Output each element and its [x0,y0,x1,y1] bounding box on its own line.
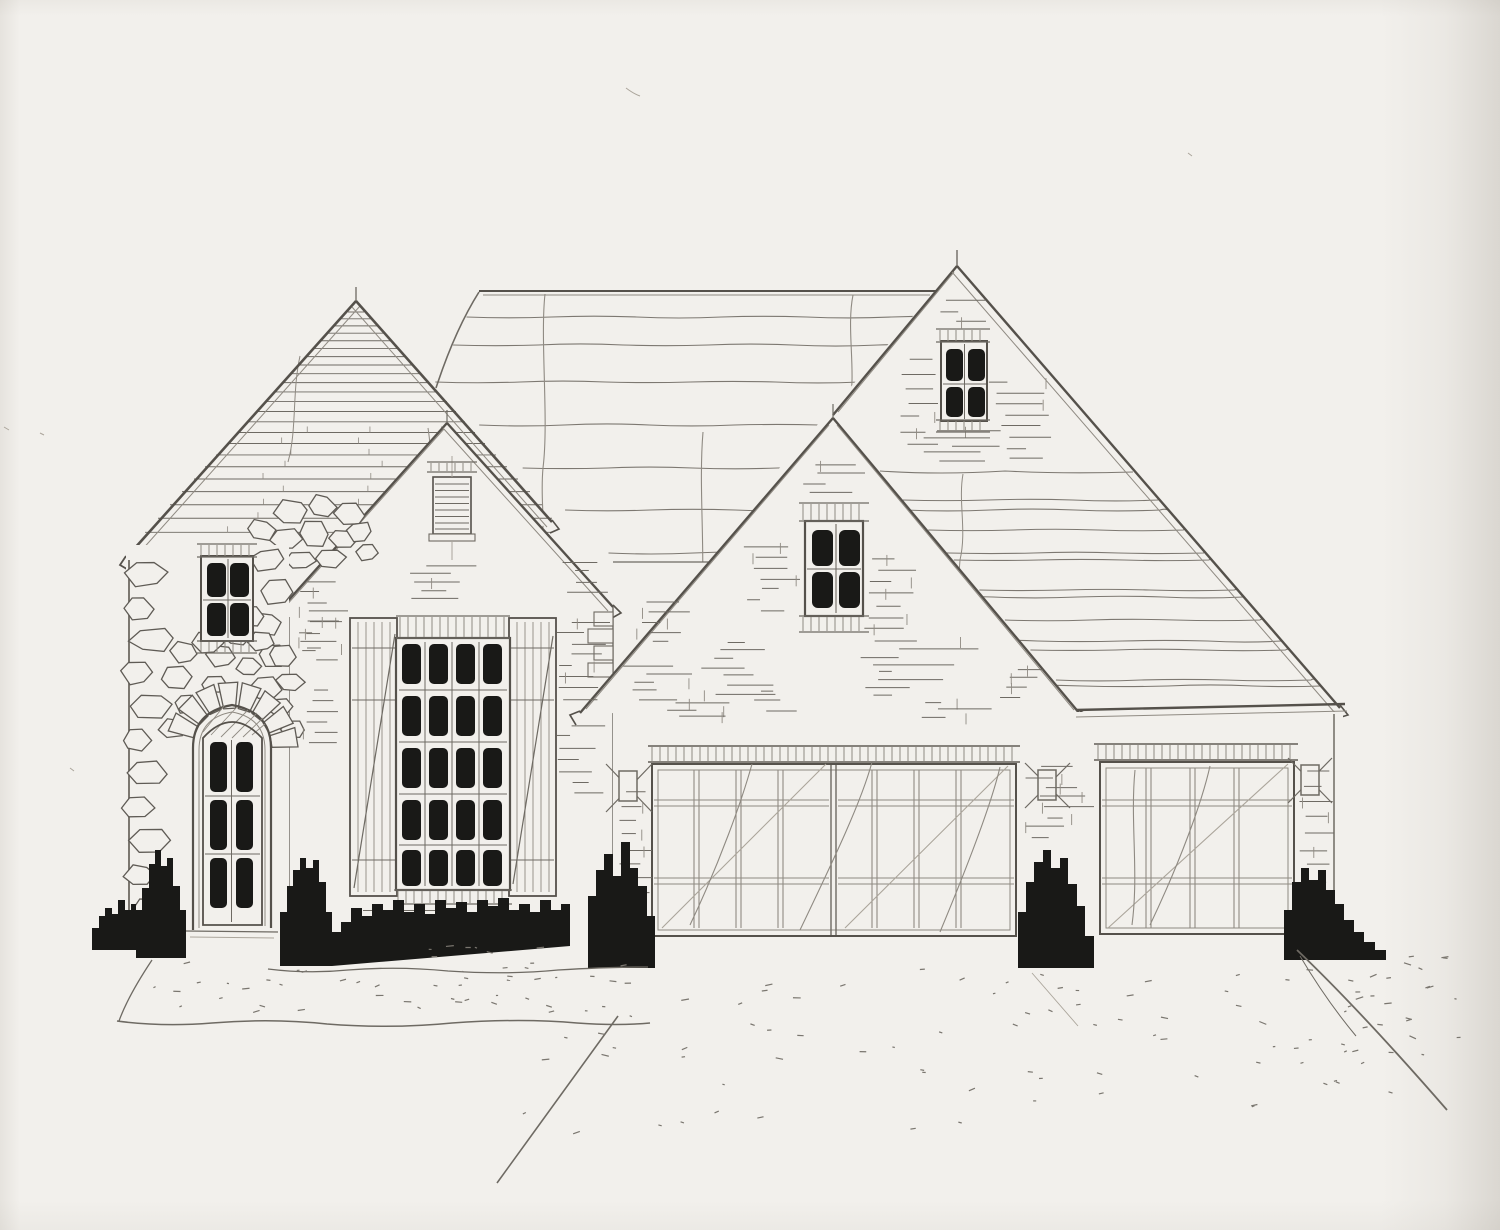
entry-tower [121,545,305,938]
right-gable-window [941,341,987,421]
feature-window [350,618,556,896]
shutter-right [509,618,556,896]
sketch-paper: Front elevation rendering: stone entry t… [0,0,1500,1230]
single-garage-door [1094,744,1298,934]
elevation-sketch: Front elevation rendering: stone entry t… [0,0,1500,1230]
driveway-edge-left [497,1016,618,1183]
shutter-left [350,618,397,896]
tower-window [201,556,253,641]
double-garage-door [648,746,1020,936]
garage-level [606,704,1347,936]
ground-stipple [153,946,1460,1134]
driveway-edge-right [1297,950,1447,1110]
center-gable-window [805,521,863,616]
ground-lines [117,950,1447,1183]
